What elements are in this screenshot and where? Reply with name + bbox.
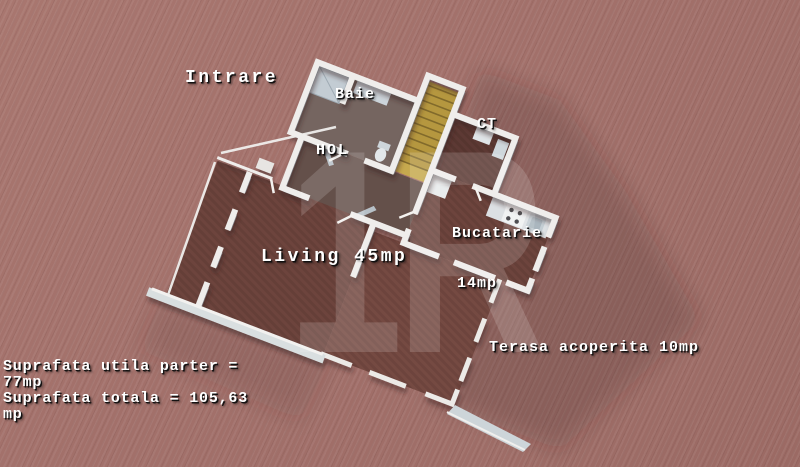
label-bucatarie-area: 14mp xyxy=(457,276,542,292)
floorplan-render: 1R Intrare Baie HOL CT Bucatarie 14mp Li… xyxy=(0,0,800,467)
label-ct: CT xyxy=(477,117,497,133)
label-intrare: Intrare xyxy=(185,69,278,88)
label-terasa: Terasa acoperita 10mp xyxy=(489,340,699,356)
label-hol: HOL xyxy=(316,143,349,159)
label-bucatarie-name: Bucatarie xyxy=(452,226,542,242)
label-bucatarie: Bucatarie 14mp xyxy=(452,194,542,323)
area-summary: Suprafata utila parter = 77mp Suprafata … xyxy=(3,359,248,423)
label-baie: Baie xyxy=(335,87,375,103)
area-summary-line2: 77mp xyxy=(3,375,248,391)
area-summary-line1: Suprafata utila parter = xyxy=(3,359,248,375)
entry-step xyxy=(256,158,275,174)
area-summary-line4: mp xyxy=(3,407,248,423)
label-living: Living 45mp xyxy=(261,248,407,267)
area-summary-line3: Suprafata totala = 105,63 xyxy=(3,391,248,407)
